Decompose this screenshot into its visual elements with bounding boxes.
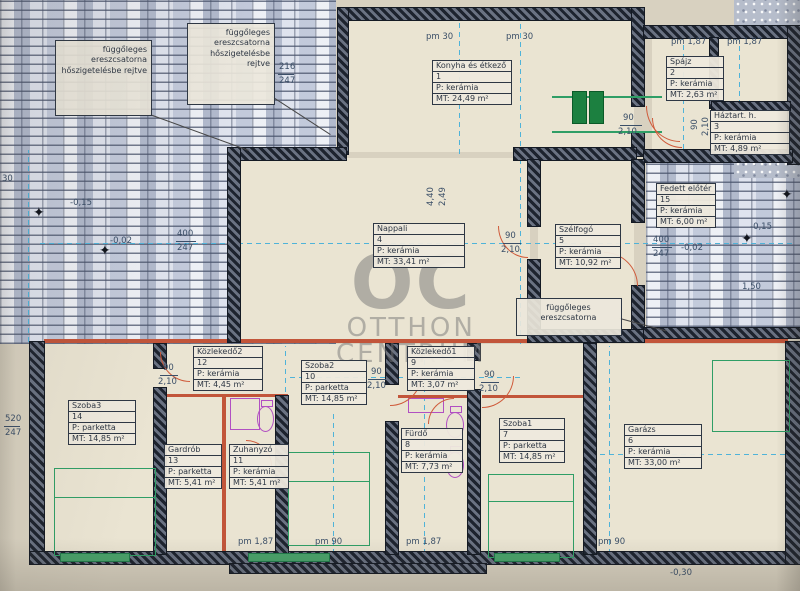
room-area: MT: 14,85 m² [69,434,135,444]
wall-red [222,397,226,554]
wall [468,390,480,554]
room-number: 15 [657,195,715,206]
room-label-f-rd-: Fürdő8P: kerámiaMT: 7,73 m² [401,428,463,473]
room-area: MT: 33,41 m² [374,257,464,267]
room-area: MT: 4,89 m² [711,144,789,154]
fraction-line [503,243,521,244]
level-marker-icon: ✦ [33,206,45,220]
wall [228,148,240,342]
room-label-zuhanyz-: Zuhanyzó11P: kerámiaMT: 5,41 m² [229,444,289,489]
wall [514,148,636,160]
dimension-label: 400 [653,235,669,245]
room-name: Szoba3 [69,401,135,412]
fraction-line [4,426,20,427]
room-area: MT: 6,00 m² [657,217,715,227]
fraction-line [481,382,499,383]
room-label-sp-jz: Spájz2P: kerámiaMT: 2,63 m² [666,56,724,101]
room-floor: P: kerámia [402,451,462,462]
dimension-label: 30 [2,174,13,184]
dimension-label: 247 [653,249,669,259]
dimension-label: 2,10 [367,381,386,391]
wall [338,8,348,154]
dimension-label: 90 [163,363,174,373]
dimension-label: 2,10 [158,377,177,387]
toilet [257,406,274,432]
dimension-label: -0,15 [70,198,92,208]
room-area: MT: 33,00 m² [625,458,701,468]
room-label-konyha-s-tkez-: Konyha és étkező1P: kerámiaMT: 24,49 m² [432,60,512,105]
dimension-label: 216 [279,62,295,72]
dimension-label: pm 1,87 [238,537,273,547]
dimension-label: pm 30 [506,32,533,42]
room-label-k-zleked-2: Közlekedő212P: kerámiaMT: 4,45 m² [193,346,263,391]
dimension-label: 520 [5,414,21,424]
room-label-gardr-b: Gardrób13P: parkettaMT: 5,41 m² [164,444,222,489]
room-label-szoba3: Szoba314P: parkettaMT: 14,85 m² [68,400,136,445]
dimension-label: 247 [177,243,193,253]
room-label-szoba2: Szoba210P: parkettaMT: 14,85 m² [301,360,367,405]
room-area: MT: 14,85 m² [500,452,564,462]
dimension-label: 90 [505,231,516,241]
room-floor: P: kerámia [711,133,789,144]
room-floor: P: parketta [500,441,564,452]
room-area: MT: 24,49 m² [433,94,511,104]
room-name: Szélfogó [556,225,620,236]
wall [632,160,644,222]
room-label-gar-zs: Garázs6P: kerámiaMT: 33,00 m² [624,424,702,469]
dim-line [28,150,29,342]
room-name: Zuhanyzó [230,445,288,456]
floor-plan-photo: OC OTTHON CENTRUM függőleges ereszcsator… [0,0,800,591]
fraction-line [620,125,642,126]
room-floor: P: kerámia [625,447,701,458]
fraction-line [278,74,294,75]
dimension-label: pm 30 [426,32,453,42]
dimension-label: 90 [623,113,634,123]
gutter-note-middle: függőleges ereszcsatorna [516,298,622,336]
room-number: 6 [625,436,701,447]
room-area: MT: 10,92 m² [556,258,620,268]
room-name: Közlekedő2 [194,347,262,358]
room-number: 14 [69,412,135,423]
dimension-label: 247 [279,76,295,86]
gutter-note-left: függőleges ereszcsatorna hőszigetelésbe … [55,40,152,116]
wall [644,328,800,338]
room-floor: P: kerámia [230,467,288,478]
room-name: Garázs [625,425,701,436]
wall [340,8,644,20]
level-marker-icon: ✦ [781,188,793,202]
fraction-line [652,247,672,248]
room-area: MT: 3,07 m² [408,380,474,390]
dimension-label: pm 90 [315,537,342,547]
level-marker-icon: ✦ [99,244,111,258]
room-number: 3 [711,122,789,133]
room-area: MT: 7,73 m² [402,462,462,472]
room-name: Háztart. h. [711,111,789,122]
dimension-label: 90 [371,367,382,377]
dimension-label: -0,30 [670,568,692,578]
room-label-nappali: Nappali4P: kerámiaMT: 33,41 m² [373,223,465,268]
furniture-outline [488,474,574,502]
room-label-szoba1: Szoba17P: parkettaMT: 14,85 m² [499,418,565,463]
kitchen-door-panel [589,91,604,124]
room-name: Szoba1 [500,419,564,430]
room-floor: P: parketta [69,423,135,434]
room-area: MT: 14,85 m² [302,394,366,404]
room-number: 2 [667,68,723,79]
dimension-label: 4,40 [426,187,436,206]
wall [230,564,486,573]
room-name: Fedett előtér [657,184,715,195]
furniture-outline [54,468,156,498]
room-label-sz-lfog-: Szélfogó5P: kerámiaMT: 10,92 m² [555,224,621,269]
room-name: Gardrób [165,445,221,456]
dimension-label: -0,02 [110,236,132,246]
room-number: 13 [165,456,221,467]
room-label-fedett-el-t-r: Fedett előtér15P: kerámiaMT: 6,00 m² [656,183,716,228]
room-floor: P: kerámia [556,247,620,258]
furniture-outline [712,360,790,432]
room-number: 12 [194,358,262,369]
window [248,553,330,562]
counter-line [552,96,662,98]
fraction-line [368,379,386,380]
wall [632,8,644,106]
fraction-line [176,241,196,242]
dimension-label: pm 1,87 [727,37,762,47]
dimension-label: pm 1,87 [671,37,706,47]
room-label-k-zleked-1: Közlekedő19P: kerámiaMT: 3,07 m² [407,346,475,391]
counter-line [552,131,662,133]
room-area: MT: 4,45 m² [194,380,262,390]
room-number: 7 [500,430,564,441]
room-name: Közlekedő1 [408,347,474,358]
dimension-label: -0,15 [750,222,772,232]
dimension-label: pm 1,87 [406,537,441,547]
room-floor: P: kerámia [374,246,464,257]
room-number: 10 [302,372,366,383]
room-number: 1 [433,72,511,83]
room-number: 5 [556,236,620,247]
room-floor: P: parketta [165,467,221,478]
dimension-label: -0,02 [681,243,703,253]
room-label-h-ztart-h-: Háztart. h.3P: kerámiaMT: 4,89 m² [710,110,790,155]
room-area: MT: 2,63 m² [667,90,723,100]
wall [632,286,644,336]
dimension-label: 2,10 [501,245,520,255]
dimension-label: 2,10 [479,384,498,394]
room-floor: P: kerámia [433,83,511,94]
wall [712,102,790,110]
dimension-label: 400 [177,229,193,239]
room-area: MT: 5,41 m² [165,478,221,488]
room-floor: P: parketta [302,383,366,394]
room-name: Nappali [374,224,464,235]
dimension-label: 1,50 [742,282,761,292]
room-number: 11 [230,456,288,467]
dimension-label: 90 [484,370,495,380]
dimension-label: 2,10 [618,127,637,137]
room-floor: P: kerámia [194,369,262,380]
dimension-label: 247 [5,428,21,438]
dimension-label: pm 90 [598,537,625,547]
dim-line [520,14,521,344]
room-name: Fürdő [402,429,462,440]
room-number: 9 [408,358,474,369]
fraction-line [160,375,178,376]
room-name: Konyha és étkező [433,61,511,72]
room-name: Spájz [667,57,723,68]
wall [30,342,44,564]
kitchen-door-panel [572,91,587,124]
wall-red [44,339,788,343]
room-floor: P: kerámia [657,206,715,217]
furniture-outline [288,452,370,482]
dimension-label: 90 [690,119,700,130]
wall [386,422,398,554]
cistern [261,400,273,407]
level-marker-icon: ✦ [741,232,753,246]
shower [230,398,260,430]
room-number: 8 [402,440,462,451]
wall [584,344,596,554]
wall [528,160,540,226]
window [60,553,130,562]
dim-line [609,346,610,554]
room-floor: P: kerámia [667,79,723,90]
wall [644,26,794,38]
room-name: Szoba2 [302,361,366,372]
room-area: MT: 5,41 m² [230,478,288,488]
dimension-label: 2,49 [438,187,448,206]
room-floor: P: kerámia [408,369,474,380]
gutter-note-top: függőleges ereszcsatorna hőszigetelésbe … [187,23,275,105]
window [494,553,560,562]
room-number: 4 [374,235,464,246]
